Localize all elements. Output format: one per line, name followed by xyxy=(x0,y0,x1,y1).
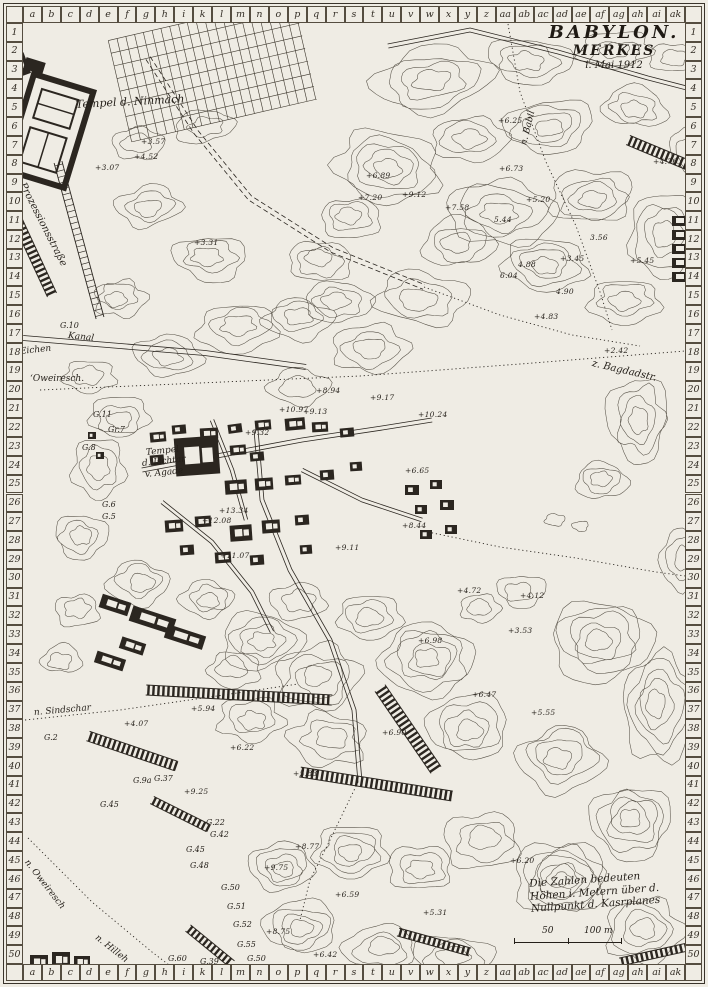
frame-row-number-left: 43 xyxy=(6,813,23,832)
frame-row-number-left: 11 xyxy=(6,211,23,230)
frame-row-number-left: 14 xyxy=(6,268,23,287)
frame-row-number-left: 42 xyxy=(6,795,23,814)
frame-col-letter-bottom: y xyxy=(458,964,477,981)
scale-tick xyxy=(514,938,515,944)
frame-col-letter-bottom: ae xyxy=(572,964,591,981)
frame-col-letter-top: q xyxy=(307,6,326,23)
frame-col-letter-top: n xyxy=(250,6,269,23)
frame-row-number-right: 10 xyxy=(685,192,702,211)
frame-row-number-right: 44 xyxy=(685,832,702,851)
frame-col-letter-bottom: b xyxy=(42,964,61,981)
frame-row-number-left: 36 xyxy=(6,682,23,701)
frame-row-number-left: 2 xyxy=(6,42,23,61)
frame-col-letter-top: t xyxy=(363,6,382,23)
frame-col-letter-bottom: d xyxy=(80,964,99,981)
frame-row-number-right: 2 xyxy=(685,42,702,61)
frame-col-letter-bottom: m xyxy=(231,964,250,981)
scale-bar: 50 100 m xyxy=(512,926,628,950)
frame-col-letter-top: ab xyxy=(515,6,534,23)
frame-row-number-right: 17 xyxy=(685,324,702,343)
frame-col-letter-top: k xyxy=(193,6,212,23)
scale-label-100m: 100 m xyxy=(584,926,613,936)
frame-row-number-right: 47 xyxy=(685,889,702,908)
frame-row-number-right: 20 xyxy=(685,381,702,400)
frame-col-letter-bottom: ab xyxy=(515,964,534,981)
frame-col-letter-bottom: w xyxy=(420,964,439,981)
frame-corner xyxy=(6,964,23,981)
frame-row-number-left: 5 xyxy=(6,98,23,117)
frame-col-letter-top: ag xyxy=(609,6,628,23)
frame-row-number-right: 27 xyxy=(685,512,702,531)
frame-col-letter-bottom: u xyxy=(382,964,401,981)
frame-col-letter-top: ai xyxy=(647,6,666,23)
frame-col-letter-bottom: n xyxy=(250,964,269,981)
scale-tick xyxy=(568,938,569,944)
map-terrain-drawing xyxy=(0,0,708,987)
frame-row-number-right: 32 xyxy=(685,606,702,625)
frame-row-number-right: 15 xyxy=(685,286,702,305)
frame-row-number-right: 46 xyxy=(685,870,702,889)
frame-row-number-right: 4 xyxy=(685,79,702,98)
frame-row-number-left: 22 xyxy=(6,418,23,437)
frame-row-number-left: 33 xyxy=(6,625,23,644)
frame-row-number-right: 38 xyxy=(685,719,702,738)
frame-row-number-left: 31 xyxy=(6,588,23,607)
frame-row-number-left: 20 xyxy=(6,381,23,400)
frame-row-number-left: 24 xyxy=(6,456,23,475)
frame-col-letter-bottom: ac xyxy=(534,964,553,981)
frame-row-number-right: 49 xyxy=(685,926,702,945)
frame-row-number-right: 19 xyxy=(685,362,702,381)
frame-row-number-right: 37 xyxy=(685,701,702,720)
frame-row-number-left: 45 xyxy=(6,851,23,870)
frame-row-number-right: 12 xyxy=(685,230,702,249)
frame-row-number-right: 3 xyxy=(685,61,702,80)
frame-row-number-right: 21 xyxy=(685,399,702,418)
frame-col-letter-bottom: x xyxy=(439,964,458,981)
frame-row-number-left: 3 xyxy=(6,61,23,80)
frame-row-number-right: 23 xyxy=(685,437,702,456)
frame-col-letter-bottom: g xyxy=(136,964,155,981)
frame-row-number-left: 10 xyxy=(6,192,23,211)
frame-col-letter-bottom: o xyxy=(269,964,288,981)
frame-col-letter-bottom: e xyxy=(99,964,118,981)
frame-col-letter-top: y xyxy=(458,6,477,23)
frame-col-letter-top: d xyxy=(80,6,99,23)
frame-row-number-left: 46 xyxy=(6,870,23,889)
frame-row-number-left: 9 xyxy=(6,174,23,193)
frame-col-letter-top: r xyxy=(326,6,345,23)
frame-col-letter-top: u xyxy=(382,6,401,23)
frame-row-number-left: 50 xyxy=(6,945,23,964)
frame-row-number-left: 44 xyxy=(6,832,23,851)
frame-row-number-right: 22 xyxy=(685,418,702,437)
frame-col-letter-top: o xyxy=(269,6,288,23)
frame-col-letter-top: i xyxy=(174,6,193,23)
frame-col-letter-bottom: k xyxy=(193,964,212,981)
frame-row-number-left: 12 xyxy=(6,230,23,249)
frame-col-letter-top: a xyxy=(23,6,42,23)
frame-row-number-right: 14 xyxy=(685,268,702,287)
frame-row-number-left: 19 xyxy=(6,362,23,381)
frame-col-letter-top: ak xyxy=(666,6,685,23)
frame-col-letter-bottom: i xyxy=(174,964,193,981)
frame-row-number-left: 28 xyxy=(6,531,23,550)
frame-row-number-left: 13 xyxy=(6,249,23,268)
frame-row-number-right: 45 xyxy=(685,851,702,870)
frame-row-number-left: 23 xyxy=(6,437,23,456)
frame-row-number-right: 29 xyxy=(685,550,702,569)
map-title: BABYLON. MERKES i. Mai 1912 xyxy=(548,22,680,71)
frame-col-letter-bottom: s xyxy=(345,964,364,981)
frame-row-number-left: 18 xyxy=(6,343,23,362)
frame-row-number-right: 48 xyxy=(685,908,702,927)
frame-row-number-left: 8 xyxy=(6,155,23,174)
frame-col-letter-bottom: z xyxy=(477,964,496,981)
frame-row-number-right: 41 xyxy=(685,776,702,795)
frame-col-letter-bottom: p xyxy=(288,964,307,981)
frame-col-letter-bottom: aa xyxy=(496,964,515,981)
frame-col-letter-bottom: ah xyxy=(628,964,647,981)
frame-row-number-left: 32 xyxy=(6,606,23,625)
frame-row-number-right: 7 xyxy=(685,136,702,155)
frame-col-letter-bottom: h xyxy=(155,964,174,981)
frame-row-number-right: 28 xyxy=(685,531,702,550)
map-title-line2: MERKES xyxy=(548,43,680,59)
frame-col-letter-top: m xyxy=(231,6,250,23)
map-title-date: i. Mai 1912 xyxy=(548,60,680,71)
frame-col-letter-top: l xyxy=(212,6,231,23)
frame-col-letter-bottom: t xyxy=(363,964,382,981)
frame-col-letter-top: af xyxy=(590,6,609,23)
frame-row-number-left: 34 xyxy=(6,644,23,663)
frame-col-letter-top: v xyxy=(401,6,420,23)
scale-tick xyxy=(621,938,622,944)
frame-row-number-left: 25 xyxy=(6,475,23,494)
frame-row-number-right: 16 xyxy=(685,305,702,324)
frame-col-letter-top: h xyxy=(155,6,174,23)
frame-row-number-left: 21 xyxy=(6,399,23,418)
frame-row-number-right: 35 xyxy=(685,663,702,682)
frame-col-letter-top: s xyxy=(345,6,364,23)
frame-col-letter-top: ah xyxy=(628,6,647,23)
frame-row-number-right: 33 xyxy=(685,625,702,644)
frame-row-number-left: 35 xyxy=(6,663,23,682)
frame-col-letter-top: z xyxy=(477,6,496,23)
frame-row-number-left: 15 xyxy=(6,286,23,305)
frame-col-letter-top: ad xyxy=(553,6,572,23)
frame-col-letter-top: c xyxy=(61,6,80,23)
frame-row-number-right: 11 xyxy=(685,211,702,230)
frame-row-number-left: 40 xyxy=(6,757,23,776)
frame-col-letter-top: aa xyxy=(496,6,515,23)
frame-col-letter-bottom: ai xyxy=(647,964,666,981)
frame-row-number-right: 26 xyxy=(685,494,702,513)
frame-col-letter-top: ac xyxy=(534,6,553,23)
frame-col-letter-top: w xyxy=(420,6,439,23)
frame-row-number-right: 8 xyxy=(685,155,702,174)
frame-row-number-left: 39 xyxy=(6,738,23,757)
frame-row-number-left: 16 xyxy=(6,305,23,324)
frame-col-letter-bottom: q xyxy=(307,964,326,981)
frame-row-number-right: 6 xyxy=(685,117,702,136)
frame-row-number-left: 30 xyxy=(6,569,23,588)
frame-col-letter-top: e xyxy=(99,6,118,23)
frame-col-letter-bottom: v xyxy=(401,964,420,981)
frame-row-number-right: 9 xyxy=(685,174,702,193)
frame-row-number-left: 17 xyxy=(6,324,23,343)
frame-col-letter-bottom: f xyxy=(118,964,137,981)
frame-col-letter-bottom: a xyxy=(23,964,42,981)
frame-row-number-left: 41 xyxy=(6,776,23,795)
frame-row-number-right: 39 xyxy=(685,738,702,757)
frame-row-number-right: 30 xyxy=(685,569,702,588)
frame-row-number-left: 49 xyxy=(6,926,23,945)
frame-row-number-left: 6 xyxy=(6,117,23,136)
frame-row-number-left: 38 xyxy=(6,719,23,738)
frame-row-number-right: 43 xyxy=(685,813,702,832)
frame-row-number-left: 1 xyxy=(6,23,23,42)
frame-row-number-left: 27 xyxy=(6,512,23,531)
frame-row-number-right: 31 xyxy=(685,588,702,607)
frame-row-number-left: 47 xyxy=(6,889,23,908)
frame-row-number-right: 18 xyxy=(685,343,702,362)
frame-col-letter-bottom: af xyxy=(590,964,609,981)
frame-row-number-right: 40 xyxy=(685,757,702,776)
frame-col-letter-bottom: c xyxy=(61,964,80,981)
frame-col-letter-bottom: ak xyxy=(666,964,685,981)
frame-col-letter-top: ae xyxy=(572,6,591,23)
frame-row-number-left: 48 xyxy=(6,908,23,927)
scanned-map-babylon-merkes: Tempel d. NinmachProzessionsstraßeG.10Ka… xyxy=(0,0,708,987)
frame-row-number-right: 42 xyxy=(685,795,702,814)
frame-row-number-right: 50 xyxy=(685,945,702,964)
frame-col-letter-top: x xyxy=(439,6,458,23)
scale-label-50: 50 xyxy=(542,926,553,936)
frame-row-number-left: 29 xyxy=(6,550,23,569)
frame-row-number-left: 37 xyxy=(6,701,23,720)
frame-row-number-right: 13 xyxy=(685,249,702,268)
frame-col-letter-top: p xyxy=(288,6,307,23)
frame-row-number-right: 36 xyxy=(685,682,702,701)
frame-row-number-left: 7 xyxy=(6,136,23,155)
frame-col-letter-bottom: l xyxy=(212,964,231,981)
frame-row-number-right: 5 xyxy=(685,98,702,117)
frame-col-letter-top: b xyxy=(42,6,61,23)
frame-row-number-left: 4 xyxy=(6,79,23,98)
frame-row-number-right: 1 xyxy=(685,23,702,42)
frame-row-number-right: 34 xyxy=(685,644,702,663)
frame-col-letter-top: f xyxy=(118,6,137,23)
map-title-line1: BABYLON. xyxy=(548,22,680,43)
frame-row-number-right: 24 xyxy=(685,456,702,475)
frame-row-number-left: 26 xyxy=(6,494,23,513)
frame-col-letter-bottom: ad xyxy=(553,964,572,981)
frame-col-letter-bottom: r xyxy=(326,964,345,981)
frame-col-letter-bottom: ag xyxy=(609,964,628,981)
frame-row-number-right: 25 xyxy=(685,475,702,494)
frame-corner xyxy=(6,6,23,23)
frame-corner xyxy=(685,6,702,23)
frame-col-letter-top: g xyxy=(136,6,155,23)
frame-corner xyxy=(685,964,702,981)
